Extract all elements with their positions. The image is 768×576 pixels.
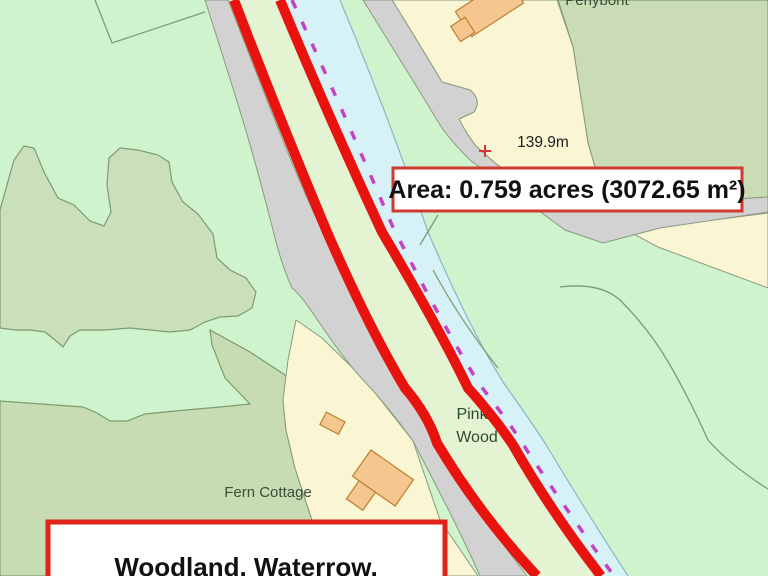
title-annotation: Woodland, Waterrow,: [48, 522, 445, 576]
map-viewport: Pink Wood 139.9m Fern Cottage Penybont A…: [0, 0, 768, 576]
area-annotation: Area: 0.759 acres (3072.65 m²): [388, 168, 745, 211]
wood-name-line2: Wood: [456, 429, 498, 446]
place-name-top: Penybont: [565, 0, 629, 9]
map-canvas: Pink Wood 139.9m Fern Cottage Penybont A…: [0, 0, 768, 576]
spot-height-label: 139.9m: [517, 134, 569, 151]
area-annotation-text: Area: 0.759 acres (3072.65 m²): [388, 176, 745, 204]
title-annotation-text: Woodland, Waterrow,: [114, 552, 377, 576]
fern-cottage-label: Fern Cottage: [224, 484, 312, 501]
